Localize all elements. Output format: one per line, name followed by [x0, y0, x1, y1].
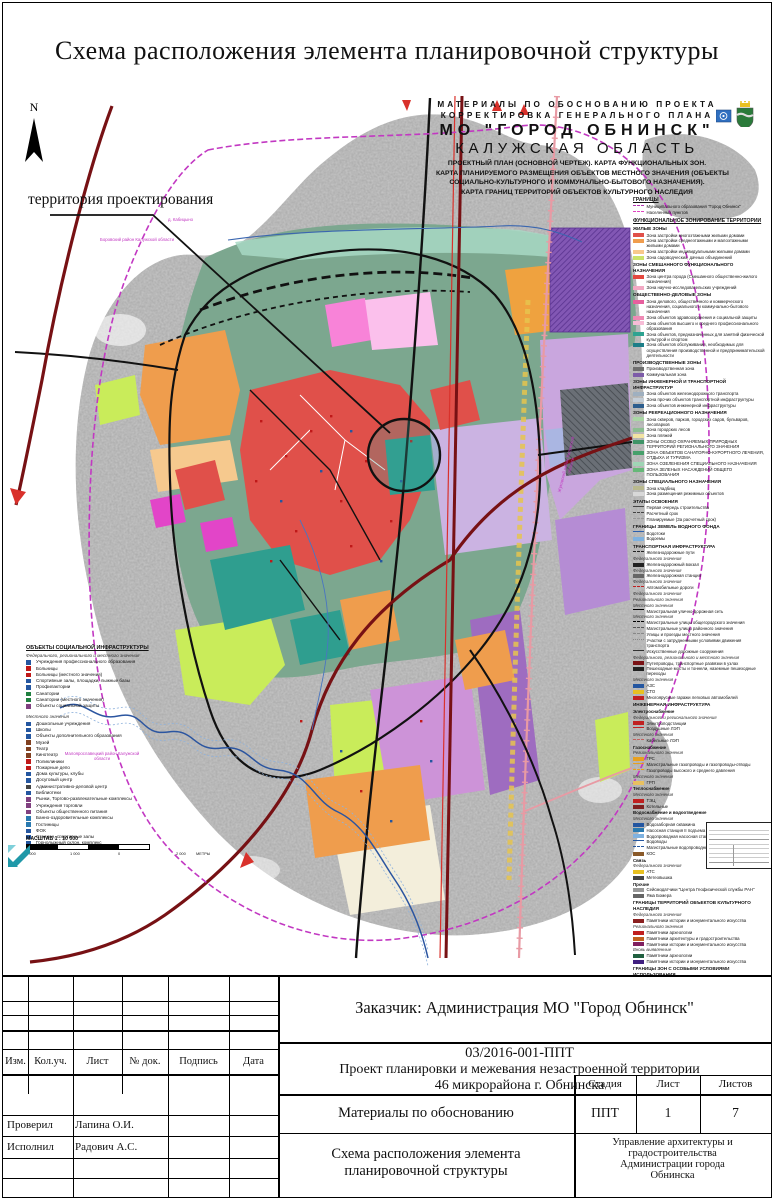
legend-swatch-icon: [633, 256, 644, 260]
legend-swatch-icon: [633, 823, 644, 827]
legend-row: ГРАНИЦЫ ЗЕМЕЛЬ ВОДНОГО ФОНДА: [633, 524, 765, 529]
legend-swatch-icon: [633, 763, 644, 764]
legend-row: Санатории (местного значения): [26, 697, 221, 703]
legend-swatch-icon: [633, 343, 644, 347]
legend-label: Федерального значения: [633, 579, 681, 584]
legend-row: Зона скверов, парков, городских садов, б…: [633, 417, 765, 427]
legend-row: Федерального и регионального значения: [633, 715, 765, 720]
legend-row: Федерального значения: [633, 556, 765, 561]
legend-label: Санатории (местного значения): [36, 697, 104, 703]
legend-row: Учреждения профессионального образования: [26, 659, 221, 665]
col-podpis: Подпись: [168, 1049, 229, 1074]
legend-row: ТРАНСПОРТНАЯ ИНФРАСТРУКТУРА: [633, 544, 765, 549]
legend-swatch-icon: [633, 211, 644, 212]
legend-row: Магистральные улицы общегородского значе…: [633, 620, 765, 625]
legend-label: ФОК: [36, 828, 46, 834]
legend-label: Объекты общественного питания: [36, 809, 107, 815]
legend-swatch-icon: [633, 667, 644, 671]
checked-role: Проверил: [5, 1115, 73, 1136]
legend-swatch-icon: [633, 586, 644, 587]
legend-swatch-icon: [26, 810, 31, 815]
legend-row: ТЭЦ: [633, 798, 765, 803]
legend-swatch-icon: [633, 639, 644, 640]
legend-row: ГРП: [633, 780, 765, 785]
legend-row: ЗОНА ЗЕЛЕНЫХ НАСАЖДЕНИЙ ОБЩЕГО ПОЛЬЗОВАН…: [633, 467, 765, 477]
legend-row: Объекты общественного питания: [26, 809, 221, 815]
legend-row: Библиотеки: [26, 790, 221, 796]
legend-label: Зона пляжей: [647, 433, 673, 438]
legend-swatch-icon: [26, 829, 31, 834]
legend-swatch-icon: [633, 781, 644, 785]
legend-label: Спортивные залы, площадки, лыжные базы: [36, 678, 130, 684]
organization-cell: Управление архитектуры и градостроительс…: [574, 1133, 771, 1197]
legend-swatch-icon: [26, 679, 31, 684]
col-koluch: Кол.уч.: [28, 1049, 73, 1074]
legend-row: Местного значения: [633, 732, 765, 737]
legend-label: Объекты социальной защиты: [36, 703, 99, 709]
legend-label: ЗОНЫ РЕКРЕАЦИОННОГО НАЗНАЧЕНИЯ: [633, 410, 727, 415]
legend-swatch-icon: [633, 321, 644, 325]
sheets-value: 7: [700, 1094, 771, 1133]
legend-label: Поликлиники: [36, 759, 64, 765]
legend-swatch-icon: [26, 740, 31, 745]
legend-label: Санатории: [36, 691, 59, 697]
area-label: д. Кабицыно: [168, 218, 193, 223]
legend-label: Воздушные ЛЭП: [647, 726, 680, 731]
client-cell: Заказчик: Администрация МО "Город Обнинс…: [278, 977, 771, 1042]
legend-swatch-icon: [26, 734, 31, 739]
legend-label: Водопроводная насосная станция: [647, 834, 715, 839]
compass-north: N: [22, 100, 46, 171]
legend-row: Зона садоводческих, дачных объединений: [633, 255, 765, 260]
project-area-circle: [368, 419, 440, 491]
legend-label: Зона объектов здравоохранения и социальн…: [647, 315, 757, 320]
legend-row: Регионального значения: [633, 750, 765, 755]
legend-label: Кинотеатр: [36, 752, 58, 758]
legend-label: Зона объектов, предназначенных для занят…: [647, 332, 766, 342]
legend-row: Памятники архитектуры и градостроительст…: [633, 936, 765, 941]
legend-row: СТО: [633, 689, 765, 694]
legend-row: Федерального значения: [633, 591, 765, 596]
legend-row: Спортивные залы, площадки, лыжные базы: [26, 678, 221, 684]
legend-row: Зона пляжей: [633, 433, 765, 438]
legend-swatch-icon: [26, 772, 31, 777]
legend-label: Автомобильные дороги: [647, 585, 694, 590]
legend-label: Федерального, регионального и местного з…: [26, 653, 139, 659]
legend-swatch-icon: [26, 728, 31, 733]
legend-swatch-icon: [26, 666, 31, 671]
legend-swatch-icon: [26, 759, 31, 764]
legend-row: ФОК: [26, 828, 221, 834]
legend-swatch-icon: [633, 876, 644, 880]
legend-label: Памятники археологии: [647, 953, 693, 958]
legend-swatch-icon: [633, 440, 644, 444]
legend-row: Путепроводы, транспортные развязки в узл…: [633, 661, 765, 666]
scale-bar: МАСШТАБ 1 : 10 000 2 000 1 000 0 2 000 М…: [26, 836, 236, 857]
legend-row: Памятники истории и монументального иску…: [633, 918, 765, 923]
legend-row: ГРАНИЦЫ ТЕРРИТОРИЙ ОБЪЕКТОВ КУЛЬТУРНОГО …: [633, 900, 765, 911]
legend-swatch-icon: [633, 846, 644, 847]
legend-label: Объекты дополнительного образования: [36, 733, 122, 739]
legend-row: ЗОНЫ СПЕЦИАЛЬНОГО НАЗНАЧЕНИЯ: [633, 479, 765, 484]
legend-row: Больницы (местного значения): [26, 672, 221, 678]
legend-row: Памятники истории и монументального иску…: [633, 942, 765, 947]
legend-row: Зона центра города (Смешанного обществен…: [633, 274, 765, 284]
legend-row: Памятники истории и монументального иску…: [633, 959, 765, 964]
doc-type-cell: Материалы по обоснованию: [278, 1094, 574, 1133]
legend-label: Зона садоводческих, дачных объединений: [647, 255, 732, 260]
checked-name: Лапина О.И.: [75, 1115, 167, 1136]
legend-row: ГРС: [633, 756, 765, 761]
legend-label: АТС: [647, 869, 655, 874]
legend-row: Памятники археологии: [633, 930, 765, 935]
area-label: Боровский район Калужской области: [100, 238, 174, 243]
legend-label: Электроснабжение: [633, 709, 674, 714]
legend-row: Гостиницы: [26, 822, 221, 828]
title-block: Изм. Кол.уч. Лист № док. Подпись Дата Пр…: [3, 975, 771, 1197]
legend-swatch-icon: [633, 942, 644, 946]
legend-swatch-icon: [26, 803, 31, 808]
legend-swatch-icon: [633, 392, 644, 396]
legend-row: Зона объектов высшего и среднего професс…: [633, 321, 765, 331]
legend-row: АЗС: [633, 683, 765, 688]
legend-label: Памятники археологии: [647, 930, 693, 935]
legend-swatch-icon: [633, 769, 644, 770]
legend-label: ЗОНА ОЗЕЛЕНЕНИЯ СПЕЦИАЛЬНОГО НАЗНАЧЕНИЯ: [647, 461, 757, 466]
legend-swatch-icon: [633, 621, 644, 622]
legend-row: Электроснабжение: [633, 709, 765, 714]
legend-row: Улицы и проезды местного значения: [633, 632, 765, 637]
legend-row: ЗОНЫ СМЕШАННОГО ФУНКЦИОНАЛЬНОГО НАЗНАЧЕН…: [633, 262, 765, 273]
legend-row: ФУНКЦИОНАЛЬНОЕ ЗОНИРОВАНИЕ ТЕРРИТОРИИ: [633, 218, 765, 224]
legend-label: Местного значения: [633, 614, 673, 619]
social-infrastructure-legend: ОБЪЕКТЫ СОЦИАЛЬНОЙ ИНФРАСТРУКТУРЫ Федера…: [26, 645, 221, 847]
compass-n-label: N: [22, 100, 46, 115]
sheet-label: Лист: [636, 1075, 700, 1094]
legend-swatch-icon: [633, 486, 644, 490]
legend-label: Зона научно-исследовательских учреждений: [647, 285, 737, 290]
legend-swatch-icon: [633, 739, 644, 740]
legend-label: ФУНКЦИОНАЛЬНОЕ ЗОНИРОВАНИЕ ТЕРРИТОРИИ: [633, 218, 761, 224]
territory-label: территория проектирования: [28, 191, 213, 209]
legend-label: Зона скверов, парков, городских садов, б…: [647, 417, 766, 427]
legend-label: ЗОНЫ ИНЖЕНЕРНОЙ И ТРАНСПОРТНОЙ ИНФРАСТРУ…: [633, 379, 765, 390]
legend-swatch-icon: [633, 684, 644, 688]
legend-label: Газоснабжение: [633, 745, 666, 750]
legend-label: ЗОНА ЗЕЛЕНЫХ НАСАЖДЕНИЙ ОБЩЕГО ПОЛЬЗОВАН…: [647, 467, 766, 477]
legend-row: Пожарные депо: [26, 765, 221, 771]
legend-row: Зона делового, общественного и коммерчес…: [633, 299, 765, 314]
legend-row: Учреждения торговли: [26, 803, 221, 809]
project-header: МАТЕРИАЛЫ ПО ОБОСНОВАНИЮ ПРОЕКТА КОРРЕКТ…: [436, 100, 718, 197]
legend-swatch-icon: [633, 627, 644, 628]
highway-arrow: [402, 100, 411, 111]
legend-swatch-icon: [633, 428, 644, 432]
legend-swatch-icon: [633, 316, 644, 320]
legend-row: Дошкольные учреждения: [26, 721, 221, 727]
legend-label: Производственная зона: [647, 366, 695, 371]
legend-label: Железнодорожные пути: [647, 550, 695, 555]
legend-label: Федерального значения: [633, 568, 681, 573]
legend-swatch-icon: [633, 398, 644, 402]
legend-row: Зона объектов железнодорожного транспорт…: [633, 391, 765, 396]
legend-label: КОС: [647, 851, 656, 856]
scheme-name-cell: Схема расположения элемента планировочно…: [278, 1133, 574, 1197]
legend-label: Местного значения: [633, 816, 673, 821]
legend-label: Электроподстанции: [647, 721, 687, 726]
social-legend-title: ОБЪЕКТЫ СОЦИАЛЬНОЙ ИНФРАСТРУКТУРЫ: [26, 645, 221, 651]
legend-row: ЗОНА ОБЪЕКТОВ САНАТОРНО-КУРОРТНОГО ЛЕЧЕН…: [633, 450, 765, 460]
legend-row: Банно-оздоровительные комплексы: [26, 815, 221, 821]
legend-row: Местного значения: [633, 603, 765, 608]
header-line: СОЦИАЛЬНО-КУЛЬТУРНОГО И КОММУНАЛЬНО-БЫТО…: [436, 178, 718, 188]
legend-row: ГРАНИЦЫ: [633, 197, 765, 203]
legend-row: Регионального значения: [633, 924, 765, 929]
legend-row: Расчетный срок: [633, 511, 765, 516]
legend-label: Федерального значения: [633, 591, 681, 596]
legend-row: Кинотеатр: [26, 752, 221, 758]
col-list: Лист: [73, 1049, 122, 1074]
legend-row: Профилактории: [26, 684, 221, 690]
legend-row: Зона кладбищ: [633, 486, 765, 491]
legend-label: Кабельные ЛЭП: [647, 738, 679, 743]
legend-label: Местного значения: [633, 677, 673, 682]
legend-row: Производственная зона: [633, 366, 765, 371]
legend-swatch-icon: [633, 696, 644, 700]
legend-label: Дома культуры, клубы: [36, 771, 84, 777]
legend-row: Первая очередь строительства: [633, 505, 765, 510]
legend-label: ПРОИЗВОДСТВЕННЫЕ ЗОНЫ: [633, 360, 701, 365]
legend-label: Водоемы: [647, 536, 666, 541]
header-line: МО "ГОРОД ОБНИНСК": [436, 122, 718, 140]
scheme-line1: Схема расположения элемента: [278, 1146, 574, 1163]
legend-row: Федерального значения: [633, 568, 765, 573]
legend-row: Теплоснабжение: [633, 786, 765, 791]
legend-row: Федерального значения: [633, 912, 765, 917]
legend-row: Зона прочих объектов транспортной инфрас…: [633, 397, 765, 402]
legend-row: Зона застройки индивидуальными жилыми до…: [633, 249, 765, 254]
legend-swatch-icon: [633, 690, 644, 694]
legend-label: Коммунальная зона: [647, 372, 687, 377]
legend-label: ГРАНИЦЫ: [633, 197, 659, 203]
scale-bar-graphic: [26, 844, 150, 850]
legend-row: Газопроводы высокого и среднего давления: [633, 768, 765, 773]
legend-swatch-icon: [633, 233, 644, 237]
legend-swatch-icon: [26, 704, 31, 709]
legend-swatch-icon: [26, 747, 31, 752]
legend-swatch-icon: [26, 797, 31, 802]
legend-label: Железнодорожный вокзал: [647, 562, 700, 567]
legend-label: Зона делового, общественного и коммерчес…: [647, 299, 766, 314]
legend-row: Зона размещения режимных объектов: [633, 491, 765, 496]
legend-label: Путепроводы, транспортные развязки в узл…: [647, 661, 739, 666]
legend-row: Федерального, регионального и местного з…: [633, 655, 765, 660]
col-data: Дата: [229, 1049, 278, 1074]
legend-row: Автомобильные дороги: [633, 585, 765, 590]
legend-row: Досуговый центр: [26, 777, 221, 783]
legend-label: ГРС: [647, 756, 655, 761]
legend-label: Зона кладбищ: [647, 486, 676, 491]
legend-swatch-icon: [26, 785, 31, 790]
org-line: Обнинска: [574, 1170, 771, 1181]
legend-swatch-icon: [633, 462, 644, 466]
legend-row: Зона застройки многоэтажными жилыми дома…: [633, 233, 765, 238]
legend-row: Зона объектов здравоохранения и социальн…: [633, 315, 765, 320]
legend-swatch-icon: [633, 275, 644, 279]
legend-label: Зона размещения режимных объектов: [647, 491, 724, 496]
legend-row: Зона научно-исследовательских учреждений: [633, 285, 765, 290]
legend-label: Магистральная улично-дорожная сеть: [647, 609, 724, 614]
legend-row: Участки с затрудненными условиями движен…: [633, 638, 765, 648]
org-line: Управление архитектуры и: [574, 1137, 771, 1148]
legend-label: Иск​усственные дорожные сооружения: [647, 649, 724, 654]
legend-label: Учреждения торговли: [36, 803, 82, 809]
legend-swatch-icon: [633, 870, 644, 874]
legend-swatch-icon: [26, 698, 31, 703]
sheets-label: Листов: [700, 1075, 771, 1094]
legend-row: Многоярусные гаражи легковых автомобилей: [633, 695, 765, 700]
legend-row: Котельные: [633, 804, 765, 809]
emblems: [716, 101, 756, 127]
north-arrow-icon: [23, 116, 45, 166]
legend-row: Водоснабжение и водоотведение: [633, 810, 765, 815]
header-line: КАРТА ПЛАНИРУЕМОГО РАЗМЕЩЕНИЯ ОБЪЕКТОВ М…: [436, 169, 718, 179]
legend-label: Многоярусные гаражи легковых автомобилей: [647, 695, 738, 700]
header-line: ПРОЕКТНЫЙ ПЛАН (ОСНОВНОЙ ЧЕРТЕЖ). КАРТА …: [436, 159, 718, 169]
legend-row: Местного значения: [26, 714, 221, 720]
legend-label: Магистральные улицы районного значения: [647, 626, 734, 631]
legend-swatch-icon: [633, 834, 644, 838]
legend-swatch-icon: [633, 518, 644, 519]
legend-label: Связь: [633, 858, 646, 863]
legend-label: Регионального значения: [633, 597, 683, 602]
legend-label: Банно-оздоровительные комплексы: [36, 815, 113, 821]
legend-row: Санатории: [26, 691, 221, 697]
legend-row: Местного значения: [633, 677, 765, 682]
legend-swatch-icon: [26, 753, 31, 758]
social-legend-rows: Федерального, регионального и местного з…: [26, 653, 221, 846]
header-line: КОРРЕКТИРОВКА ГЕНЕРАЛЬНОГО ПЛАНА: [436, 111, 718, 120]
author-name: Радович А.С.: [75, 1136, 167, 1158]
legend-row: ЗОНЫ ОСОБО ОХРАНЯЕМЫХ ПРИРОДНЫХ ТЕРРИТОР…: [633, 439, 765, 449]
legend-label: Федерального значения: [633, 912, 681, 917]
legend-label: Зона объектов обслуживания, необходимых …: [647, 342, 766, 357]
legend-label: Школы: [36, 727, 51, 733]
sheet-value: 1: [636, 1094, 700, 1133]
legend-row: Магистральные газопроводы и газопроводы-…: [633, 762, 765, 767]
legend-label: Магистральные газопроводы и газопроводы-…: [647, 762, 751, 767]
legend-row: Рынки, Торгово-развлекательные комплексы: [26, 796, 221, 802]
legend-swatch-icon: [633, 451, 644, 455]
legend-swatch-icon: [633, 373, 644, 377]
drawing-sheet: Схема расположения элемента планировочно…: [0, 0, 774, 1200]
mini-title-stamp: [706, 822, 772, 869]
legend-swatch-icon: [633, 609, 644, 610]
stage-label: Стадия: [574, 1075, 636, 1094]
legend-label: Регионального значения: [633, 750, 683, 755]
project-code: 03/2016-001-ППТ: [278, 1045, 761, 1062]
legend-row: Объекты дополнительного образования: [26, 733, 221, 739]
publisher-logo-icon: [4, 843, 34, 869]
legend-label: Первая очередь строительства: [647, 505, 710, 510]
legend-label: АЗС: [647, 683, 655, 688]
legend-row: Зона застройки среднеэтажными и малоэтаж…: [633, 238, 765, 248]
legend-label: Яма Бомера: [647, 893, 672, 898]
header-line: МАТЕРИАЛЫ ПО ОБОСНОВАНИЮ ПРОЕКТА: [436, 100, 718, 109]
legend-swatch-icon: [633, 468, 644, 472]
legend-row: Яма Бомера: [633, 893, 765, 898]
legend-row: Федерального, регионального и местного з…: [26, 653, 221, 659]
legend-label: Котельные: [647, 804, 669, 809]
scale-mark: 2 000: [176, 851, 186, 856]
legend-label: Федерального и регионального значения: [633, 715, 717, 720]
legend-swatch-icon: [633, 888, 644, 892]
legend-label: ГРАНИЦЫ ЗЕМЕЛЬ ВОДНОГО ФОНДА: [633, 524, 720, 529]
legend-row: Федерального значения: [633, 579, 765, 584]
legend-swatch-icon: [633, 931, 644, 935]
legend-label: Зона объектов железнодорожного транспорт…: [647, 391, 739, 396]
legend-label: Зона городских лесов: [647, 427, 691, 432]
obninsk-flag-icon: [716, 110, 731, 122]
legend-swatch-icon: [633, 250, 644, 254]
legend-label: Газопроводы высокого и среднего давления: [647, 768, 735, 773]
legend-row: Зона объектов обслуживания, необходимых …: [633, 342, 765, 357]
legend-row: Больницы: [26, 666, 221, 672]
legend-swatch-icon: [26, 822, 31, 827]
legend-label: Местного значения: [633, 792, 673, 797]
legend-swatch-icon: [633, 960, 644, 964]
legend-label: Местного значения: [26, 714, 69, 720]
legend-swatch-icon: [26, 673, 31, 678]
legend-row: Магистральная улично-дорожная сеть: [633, 609, 765, 614]
legend-label: Зона объектов высшего и среднего професс…: [647, 321, 766, 331]
legend-swatch-icon: [633, 727, 644, 728]
author-role: Исполнил: [5, 1136, 73, 1158]
legend-row: Метеовышка: [633, 875, 765, 880]
legend-label: Насосная станция II подъема: [647, 828, 706, 833]
legend-swatch-icon: [633, 574, 644, 578]
communal-hatched-block: [550, 228, 630, 332]
legend-row: Театр: [26, 746, 221, 752]
legend-row: ИНЖЕНЕРНАЯ ИНФРАСТРУКТУРА: [633, 702, 765, 707]
legend-row: ОБЩЕСТВЕННО-ДЕЛОВЫЕ ЗОНЫ: [633, 292, 765, 297]
legend-swatch-icon: [633, 799, 644, 803]
legend-swatch-icon: [633, 721, 644, 725]
legend-label: ЖИЛЫЕ ЗОНЫ: [633, 226, 667, 231]
legend-label: Дошкольные учреждения: [36, 721, 90, 727]
legend-label: Музей: [36, 740, 49, 746]
legend-row: Вновь выявленные: [633, 947, 765, 952]
legend-label: Больницы (местного значения): [36, 672, 102, 678]
legend-label: Планируемые (За расчетный срок): [647, 517, 716, 522]
legend-label: Административно-деловой центр: [36, 784, 107, 790]
legend-label: Водотоки: [647, 531, 666, 536]
legend-label: Участки с затрудненными условиями движен…: [647, 638, 766, 648]
legend-label: Зона застройки многоэтажными жилыми дома…: [647, 233, 745, 238]
legend-swatch-icon: [26, 722, 31, 727]
scale-label: МАСШТАБ 1 : 10 000: [26, 836, 236, 842]
legend-swatch-icon: [633, 563, 644, 567]
legend-label: Улицы и проезды местного значения: [647, 632, 720, 637]
legend-label: Учреждения профессионального образования: [36, 659, 135, 665]
legend-label: ГРП: [647, 780, 655, 785]
legend-row: ЖИЛЫЕ ЗОНЫ: [633, 226, 765, 231]
legend-row: Коммунальная зона: [633, 372, 765, 377]
legend-label: ИНЖЕНЕРНАЯ ИНФРАСТРУКТУРА: [633, 702, 710, 707]
legend-swatch-icon: [633, 300, 644, 304]
legend-label: ЭТАПЫ ОСВОЕНИЯ: [633, 499, 678, 504]
legend-row: Населенных пунктов: [633, 210, 765, 215]
